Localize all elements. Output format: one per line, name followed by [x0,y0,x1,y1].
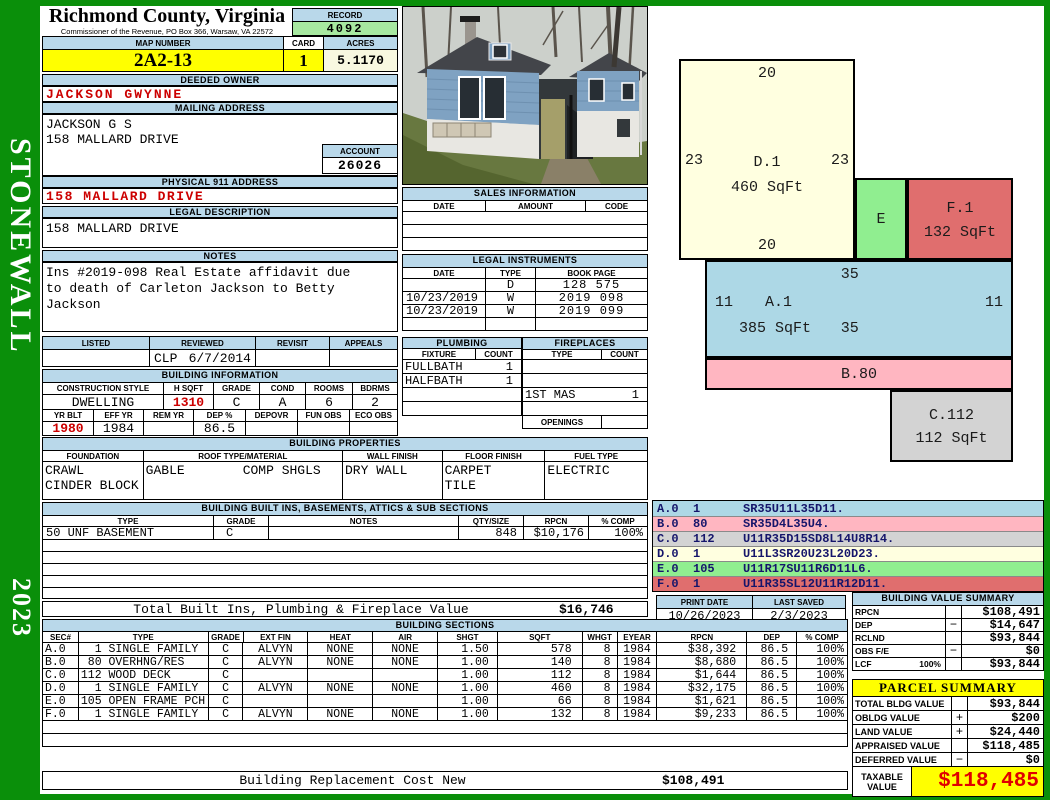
county-header: Richmond County, Virginia Commissioner o… [42,6,292,35]
empty-row [43,551,647,563]
yrblt-value: 1980 [43,422,93,435]
bs-comp-label: % COMP [796,632,847,642]
bvs-value: $108,491 [961,606,1043,618]
li-date-label: DATE [403,268,485,278]
hsqft-value: 1310 [163,395,213,409]
bs-shgt: 1.00 [437,695,497,707]
li-bookpage-label: BOOK PAGE [535,268,647,278]
bs-sec-label: SEC# [43,632,78,642]
li-type-value: W [485,292,535,304]
fireplaces-title: FIREPLACES [523,338,647,349]
bs-eyear: 1984 [617,643,657,655]
bvs-label: RCLND [855,633,885,643]
bs-comp: 100% [796,643,847,655]
legend-code: E.0 [653,562,693,576]
bvs-sign [945,658,961,670]
bs-sqft: 66 [497,695,582,707]
li-type-value [485,318,535,330]
fixture-count: 1 [475,374,521,387]
replacement-cost-row: Building Replacement Cost New $108,491 [42,771,848,790]
bs-grade: C [208,695,243,707]
plumbing-row: FULLBATH 1 [403,359,521,373]
legal-instrument-row: 10/23/2019 W 2019 099 [403,304,647,317]
remyr-value [143,422,193,435]
bi-type-label: TYPE [43,516,213,526]
legend-qty: 105 [693,562,743,576]
legend-row: E.0 105 U11R17SU11R6D11L6. [653,561,1043,576]
bs-eyear: 1984 [617,669,657,681]
dim-top: 35 [841,266,859,283]
map-number-label: MAP NUMBER [43,37,283,49]
bvs-sign: − [945,619,961,631]
deeded-owner-value: JACKSON GWYNNE [42,86,398,102]
fixture-value: HALFBATH [403,374,475,387]
fp-count-value: 1 [601,388,647,401]
listed-value [43,350,149,366]
bs-comp: 100% [796,682,847,694]
ps-value: $0 [967,753,1043,766]
bs-grade: C [208,656,243,668]
building-properties-title: BUILDING PROPERTIES [43,438,647,450]
building-section-row: F.0 1 SINGLE FAMILY C ALVYN NONE NONE 1.… [43,707,847,720]
account-box: ACCOUNT 26026 [322,144,398,174]
building-section-rows: A.0 1 SINGLE FAMILY C ALVYN NONE NONE 1.… [43,642,847,720]
fireplaces-table: FIREPLACES TYPE COUNT [522,337,648,429]
shape-area: 460 SqFt [681,179,853,196]
floor-finish-line: CARPET [445,463,492,478]
bvs-row: OBS F/E − $0 [853,644,1043,657]
empty-row [403,224,647,237]
ps-value: $118,485 [967,739,1043,752]
house-photo-illustration [403,7,647,184]
last-saved-label: LAST SAVED [752,596,845,608]
bs-whgt: 8 [582,682,617,694]
bs-whgt: 8 [582,656,617,668]
ps-label: APPRAISED VALUE [853,739,951,752]
bs-air [372,669,437,681]
bvs-row: RCLND $93,844 [853,631,1043,644]
bs-dep: 86.5 [746,669,796,681]
empty-row [403,211,647,224]
empty-row [43,733,847,746]
notes-label: NOTES [42,250,398,262]
fp-type-value: 1ST MAS [523,388,601,401]
legend-row: B.0 80 SR35D4L35U4. [653,516,1043,531]
bi-qty-label: QTY/SIZE [458,516,523,526]
mailing-line: JACKSON G S [46,117,397,132]
acres-label: ACRES [323,37,397,49]
legal-instruments-rows: D 128 575 10/23/2019 W 2019 098 10/23/20… [403,278,647,330]
bs-sec: A.0 [43,643,78,655]
dim-left: 11 [715,294,733,311]
legend-vector: U11R35D15SD8L14U8R14. [743,532,1043,546]
ps-label: OBLDG VALUE [853,711,951,724]
bvs-label: DEP [855,620,872,630]
legend-vector: U11R17SU11R6D11L6. [743,562,1043,576]
bs-type-label: TYPE [78,632,208,642]
plumbing-table: PLUMBING FIXTURE COUNT FULLBATH 1 HALFBA… [402,337,522,416]
bi-grade-label: GRADE [213,516,268,526]
fp-count-label: COUNT [601,350,647,360]
fp-count-value [601,360,647,373]
legend-row: A.0 1 SR35U11L35D11. [653,501,1043,516]
bi-comp-value: 100% [588,527,647,539]
acres-value: 5.1170 [323,50,397,71]
bs-eyear: 1984 [617,708,657,720]
legal-instruments-table: LEGAL INSTRUMENTS DATE TYPE BOOK PAGE D … [402,254,648,331]
fp-type-value [523,402,601,415]
bs-heat: NONE [307,656,372,668]
sketch-shape-a: 35 11 11 A.1 385 SqFt 35 [705,260,1013,358]
sketch-shape-f: F.1 132 SqFt [907,178,1013,260]
ps-value: $24,440 [967,725,1043,738]
bs-heat-label: HEAT [307,632,372,642]
shape-name: D.1 [681,154,853,171]
bs-sec: F.0 [43,708,78,720]
plumbing-row [403,401,521,415]
revisit-label: REVISIT [255,337,329,349]
floor-finish-line: TILE [445,478,476,493]
empty-row [43,720,847,733]
openings-label: OPENINGS [523,416,601,428]
plumbing-title: PLUMBING [403,338,521,348]
bs-rpcn: $9,233 [656,708,746,720]
bi-rpcn-value: $10,176 [523,527,588,539]
legal-description-value: 158 MALLARD DRIVE [42,218,398,248]
bs-dep: 86.5 [746,708,796,720]
bs-air: NONE [372,682,437,694]
dep-pct-label: DEP % [193,410,245,421]
empty-row [403,237,647,250]
built-ins-table: BUILDING BUILT INS, BASEMENTS, ATTICS & … [42,502,648,599]
fixture-count [475,402,521,415]
foundation-line: CRAWL [45,463,84,478]
record-box: RECORD 4092 [292,8,398,36]
building-section-row: B.0 80 OVERHNG/RES C ALVYN NONE NONE 1.0… [43,655,847,668]
bvs-value: $93,844 [961,658,1043,670]
fp-count-value [601,374,647,387]
year-label: 2023 [6,578,36,638]
built-ins-total-value: $16,746 [559,602,647,617]
reviewed-label: REVIEWED [149,337,255,349]
sales-info-table: SALES INFORMATION DATE AMOUNT CODE [402,187,648,251]
notes-line: to death of Carleton Jackson to Betty [46,281,397,297]
plumbing-count-label: COUNT [475,349,521,359]
foundation-label: FOUNDATION [43,451,143,461]
legal-description-label: LEGAL DESCRIPTION [42,206,398,218]
taxable-value-label: TAXABLE VALUE [853,767,911,796]
building-section-row: C.0 112 WOOD DECK C 1.00 112 8 1984 $1,6… [43,668,847,681]
card-value: 1 [283,50,323,71]
physical-address-value: 158 MALLARD DRIVE [42,188,398,204]
property-photo [402,6,648,185]
ps-label: TOTAL BLDG VALUE [853,697,951,710]
bvs-rows: RPCN $108,491 DEP − $14,647 [853,605,1043,670]
ps-sign [951,739,967,752]
bs-whgt-label: WHGT [582,632,617,642]
depovr-value [245,422,297,435]
bvs-pct: 100% [919,659,941,669]
shape-area: 132 SqFt [909,224,1011,241]
bs-shgt: 1.50 [437,643,497,655]
bs-sqft-label: SQFT [497,632,582,642]
bvs-sign: − [945,645,961,657]
bs-extfin: ALVYN [242,643,307,655]
building-section-row: D.0 1 SINGLE FAMILY C ALVYN NONE NONE 1.… [43,681,847,694]
legend-row: C.0 112 U11R35D15SD8L14U8R14. [653,531,1043,546]
dim-top: 20 [681,65,853,82]
account-value: 26026 [323,157,397,173]
appeals-value [329,350,397,366]
taxable-value: $118,485 [911,767,1043,796]
bs-rpcn: $8,680 [656,656,746,668]
fixture-label: FIXTURE [403,349,475,359]
legal-instruments-title: LEGAL INSTRUMENTS [403,255,647,267]
li-bookpage-value: 2019 098 [535,292,647,304]
card-body: Richmond County, Virginia Commissioner o… [40,6,1044,794]
li-type-label: TYPE [485,268,535,278]
rooms-label: ROOMS [305,383,352,394]
notes-block: Ins #2019-098 Real Estate affidavit due … [42,262,398,332]
bs-dep: 86.5 [746,643,796,655]
legend-code: B.0 [653,517,693,531]
bs-type: 1 SINGLE FAMILY [78,682,208,694]
legend-qty: 80 [693,517,743,531]
district-label: STONEWALL [3,138,37,355]
fireplace-row [523,373,647,387]
parcel-summary-title: PARCEL SUMMARY [853,680,1043,696]
bs-sqft: 578 [497,643,582,655]
bdrms-label: BDRMS [352,383,397,394]
shape-name: E [876,211,885,228]
parcel-summary-row: DEFERRED VALUE − $0 [853,752,1043,766]
bs-type: 105 OPEN FRAME PCH [78,695,208,707]
bvs-sign [945,632,961,644]
notes-line: Jackson [46,297,397,313]
openings-value [601,416,647,428]
bvs-sign [945,606,961,618]
bs-air: NONE [372,643,437,655]
shape-name: A.1 [765,294,792,311]
bs-extfin [242,669,307,681]
bs-whgt: 8 [582,669,617,681]
bs-dep-label: DEP [746,632,796,642]
ps-sign: + [951,725,967,738]
bs-sec: E.0 [43,695,78,707]
bs-air: NONE [372,656,437,668]
yrblt-label: YR BLT [43,410,93,421]
fixture-count: 1 [475,360,521,373]
commissioner-line: Commissioner of the Revenue, PO Box 366,… [42,27,292,36]
ps-sign [951,697,967,710]
cond-label: COND [259,383,305,394]
building-sections-title: BUILDING SECTIONS [43,620,847,631]
bs-shgt: 1.00 [437,656,497,668]
fp-type-label: TYPE [523,350,601,360]
county-title: Richmond County, Virginia [42,6,292,27]
construction-style-value: DWELLING [43,395,163,409]
bvs-row: LCF 100% $93,844 [853,657,1043,670]
fireplace-rows: 1ST MAS 1 [523,359,647,415]
bs-whgt: 8 [582,643,617,655]
bs-dep: 86.5 [746,682,796,694]
bs-dep: 86.5 [746,656,796,668]
sales-date-label: DATE [403,201,485,211]
bs-air [372,695,437,707]
floor-finish-label: FLOOR FINISH [442,451,545,461]
empty-row [43,575,647,587]
plumbing-row [403,387,521,401]
legend-code: D.0 [653,547,693,561]
bs-grade-label: GRADE [208,632,243,642]
ps-value: $93,844 [967,697,1043,710]
ecoobs-value [349,422,397,435]
bs-eyear-label: EYEAR [617,632,657,642]
built-ins-total-row: Total Built Ins, Plumbing & Fireplace Va… [42,601,648,617]
print-date-label: PRINT DATE [657,596,752,608]
bs-rpcn: $38,392 [656,643,746,655]
shape-name: C.112 [892,407,1011,424]
appeals-label: APPEALS [329,337,397,349]
roof-material-value: COMP SHGLS [243,463,321,478]
bvs-value: $0 [961,645,1043,657]
building-value-summary-title: BUILDING VALUE SUMMARY [853,593,1043,605]
legend-qty: 112 [693,532,743,546]
building-info-table: BUILDING INFORMATION CONSTRUCTION STYLE … [42,369,398,436]
bi-comp-label: % COMP [588,516,647,526]
empty-row [43,587,647,598]
bs-extfin: ALVYN [242,682,307,694]
fireplace-row: 1ST MAS 1 [523,387,647,401]
li-bookpage-value [535,318,647,330]
hsqft-label: H SQFT [163,383,213,394]
bs-type: 112 WOOD DECK [78,669,208,681]
bvs-value: $93,844 [961,632,1043,644]
fixture-count [475,388,521,401]
dim-bottom: 35 [841,320,859,337]
remyr-label: REM YR [143,410,193,421]
building-properties-table: BUILDING PROPERTIES FOUNDATION ROOF TYPE… [42,437,648,500]
replacement-cost-label: Building Replacement Cost New [43,773,662,788]
parcel-summary-rows: TOTAL BLDG VALUE $93,844 OBLDG VALUE + $… [853,696,1043,766]
bs-eyear: 1984 [617,656,657,668]
bs-shgt-label: SHGT [437,632,497,642]
bs-sec: C.0 [43,669,78,681]
bs-sqft: 140 [497,656,582,668]
building-info-title: BUILDING INFORMATION [43,370,397,382]
depovr-label: DEPOVR [245,410,297,421]
sketch-shape-c: C.112 112 SqFt [890,390,1013,462]
visits-table: LISTED REVIEWED REVISIT APPEALS CLP 6/7/… [42,336,398,367]
bs-rpcn-label: RPCN [656,632,746,642]
bi-rpcn-label: RPCN [523,516,588,526]
sketch-shape-d: 20 23 23 D.1 460 SqFt 20 [679,59,855,260]
li-date-value: 10/23/2019 [403,292,485,304]
legend-qty: 1 [693,577,743,591]
shape-area: 112 SqFt [892,430,1011,447]
replacement-cost-value: $108,491 [662,773,762,788]
li-date-value: 10/23/2019 [403,305,485,317]
sketch-shape-b: B.80 [705,358,1013,390]
ps-value: $200 [967,711,1043,724]
parcel-summary-row: OBLDG VALUE + $200 [853,710,1043,724]
bs-whgt: 8 [582,708,617,720]
li-date-value [403,279,485,291]
building-section-row: A.0 1 SINGLE FAMILY C ALVYN NONE NONE 1.… [43,642,847,655]
legal-instrument-row [403,317,647,330]
empty-row [43,539,647,551]
property-record-card: STONEWALL 2023 Richmond County, Virginia… [0,0,1050,800]
bs-rpcn: $1,644 [656,669,746,681]
legend-code: C.0 [653,532,693,546]
bs-heat: NONE [307,643,372,655]
legend-qty: 1 [693,547,743,561]
fixture-value [403,402,475,415]
account-label: ACCOUNT [323,145,397,157]
bvs-row: DEP − $14,647 [853,618,1043,631]
bs-comp: 100% [796,669,847,681]
deeded-owner-label: DEEDED OWNER [42,74,398,86]
bs-type: 1 SINGLE FAMILY [78,708,208,720]
parcel-summary-row: TOTAL BLDG VALUE $93,844 [853,696,1043,710]
bs-type: 80 OVERHNG/RES [78,656,208,668]
reviewed-by: CLP [154,351,177,366]
reviewed-date: 6/7/2014 [189,351,251,366]
legend-vector: SR35U11L35D11. [743,502,1043,516]
fixture-value: FULLBATH [403,360,475,373]
legend-code: A.0 [653,502,693,516]
bs-sqft: 132 [497,708,582,720]
bvs-label: LCF [855,659,872,669]
listed-label: LISTED [43,337,149,349]
li-type-value: W [485,305,535,317]
bdrms-value: 2 [352,395,397,409]
dim-right: 11 [985,294,1003,311]
built-ins-title: BUILDING BUILT INS, BASEMENTS, ATTICS & … [43,503,647,515]
roof-type-value: GABLE [146,463,185,478]
fp-type-value [523,374,601,387]
bs-heat: NONE [307,682,372,694]
shape-area: 385 SqFt [739,320,811,337]
bs-grade: C [208,643,243,655]
legal-instrument-row: D 128 575 [403,278,647,291]
legend-vector: U11L3SR20U23L20D23. [743,547,1043,561]
plumbing-rows: FULLBATH 1 HALFBATH 1 [403,359,521,415]
sketch-shape-e: E [855,178,907,260]
bs-extfin: ALVYN [242,656,307,668]
sales-info-title: SALES INFORMATION [403,188,647,200]
legend-vector: SR35D4L35U4. [743,517,1043,531]
bs-heat [307,669,372,681]
ps-label: LAND VALUE [853,725,951,738]
bs-extfin-label: EXT FIN [243,632,308,642]
bs-shgt: 1.00 [437,708,497,720]
bs-grade: C [208,682,243,694]
ps-label: DEFERRED VALUE [853,753,951,766]
fuel-type-label: FUEL TYPE [544,451,647,461]
sketch-legend: A.0 1 SR35U11L35D11. B.0 80 SR35D4L35U4.… [652,500,1044,592]
bi-notes-label: NOTES [268,516,458,526]
bs-comp: 100% [796,708,847,720]
dim-bottom: 20 [681,237,853,254]
sales-code-label: CODE [585,201,647,211]
foundation-line: CINDER BLOCK [45,478,139,493]
fireplace-row [523,401,647,415]
bvs-row: RPCN $108,491 [853,605,1043,618]
wall-finish-label: WALL FINISH [342,451,442,461]
parcel-summary-row: LAND VALUE + $24,440 [853,724,1043,738]
bs-heat: NONE [307,708,372,720]
